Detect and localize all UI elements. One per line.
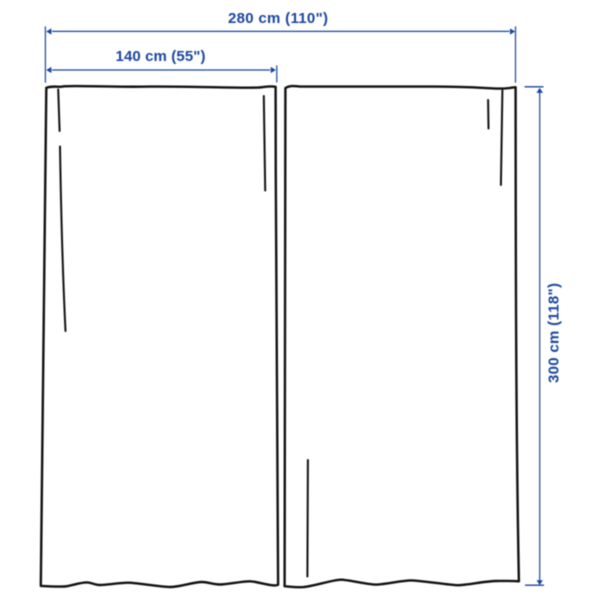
svg-text:140 cm (55"): 140 cm (55") [116, 48, 206, 65]
svg-text:280 cm (110"): 280 cm (110") [228, 10, 328, 27]
svg-text:300 cm (118"): 300 cm (118") [546, 283, 563, 383]
